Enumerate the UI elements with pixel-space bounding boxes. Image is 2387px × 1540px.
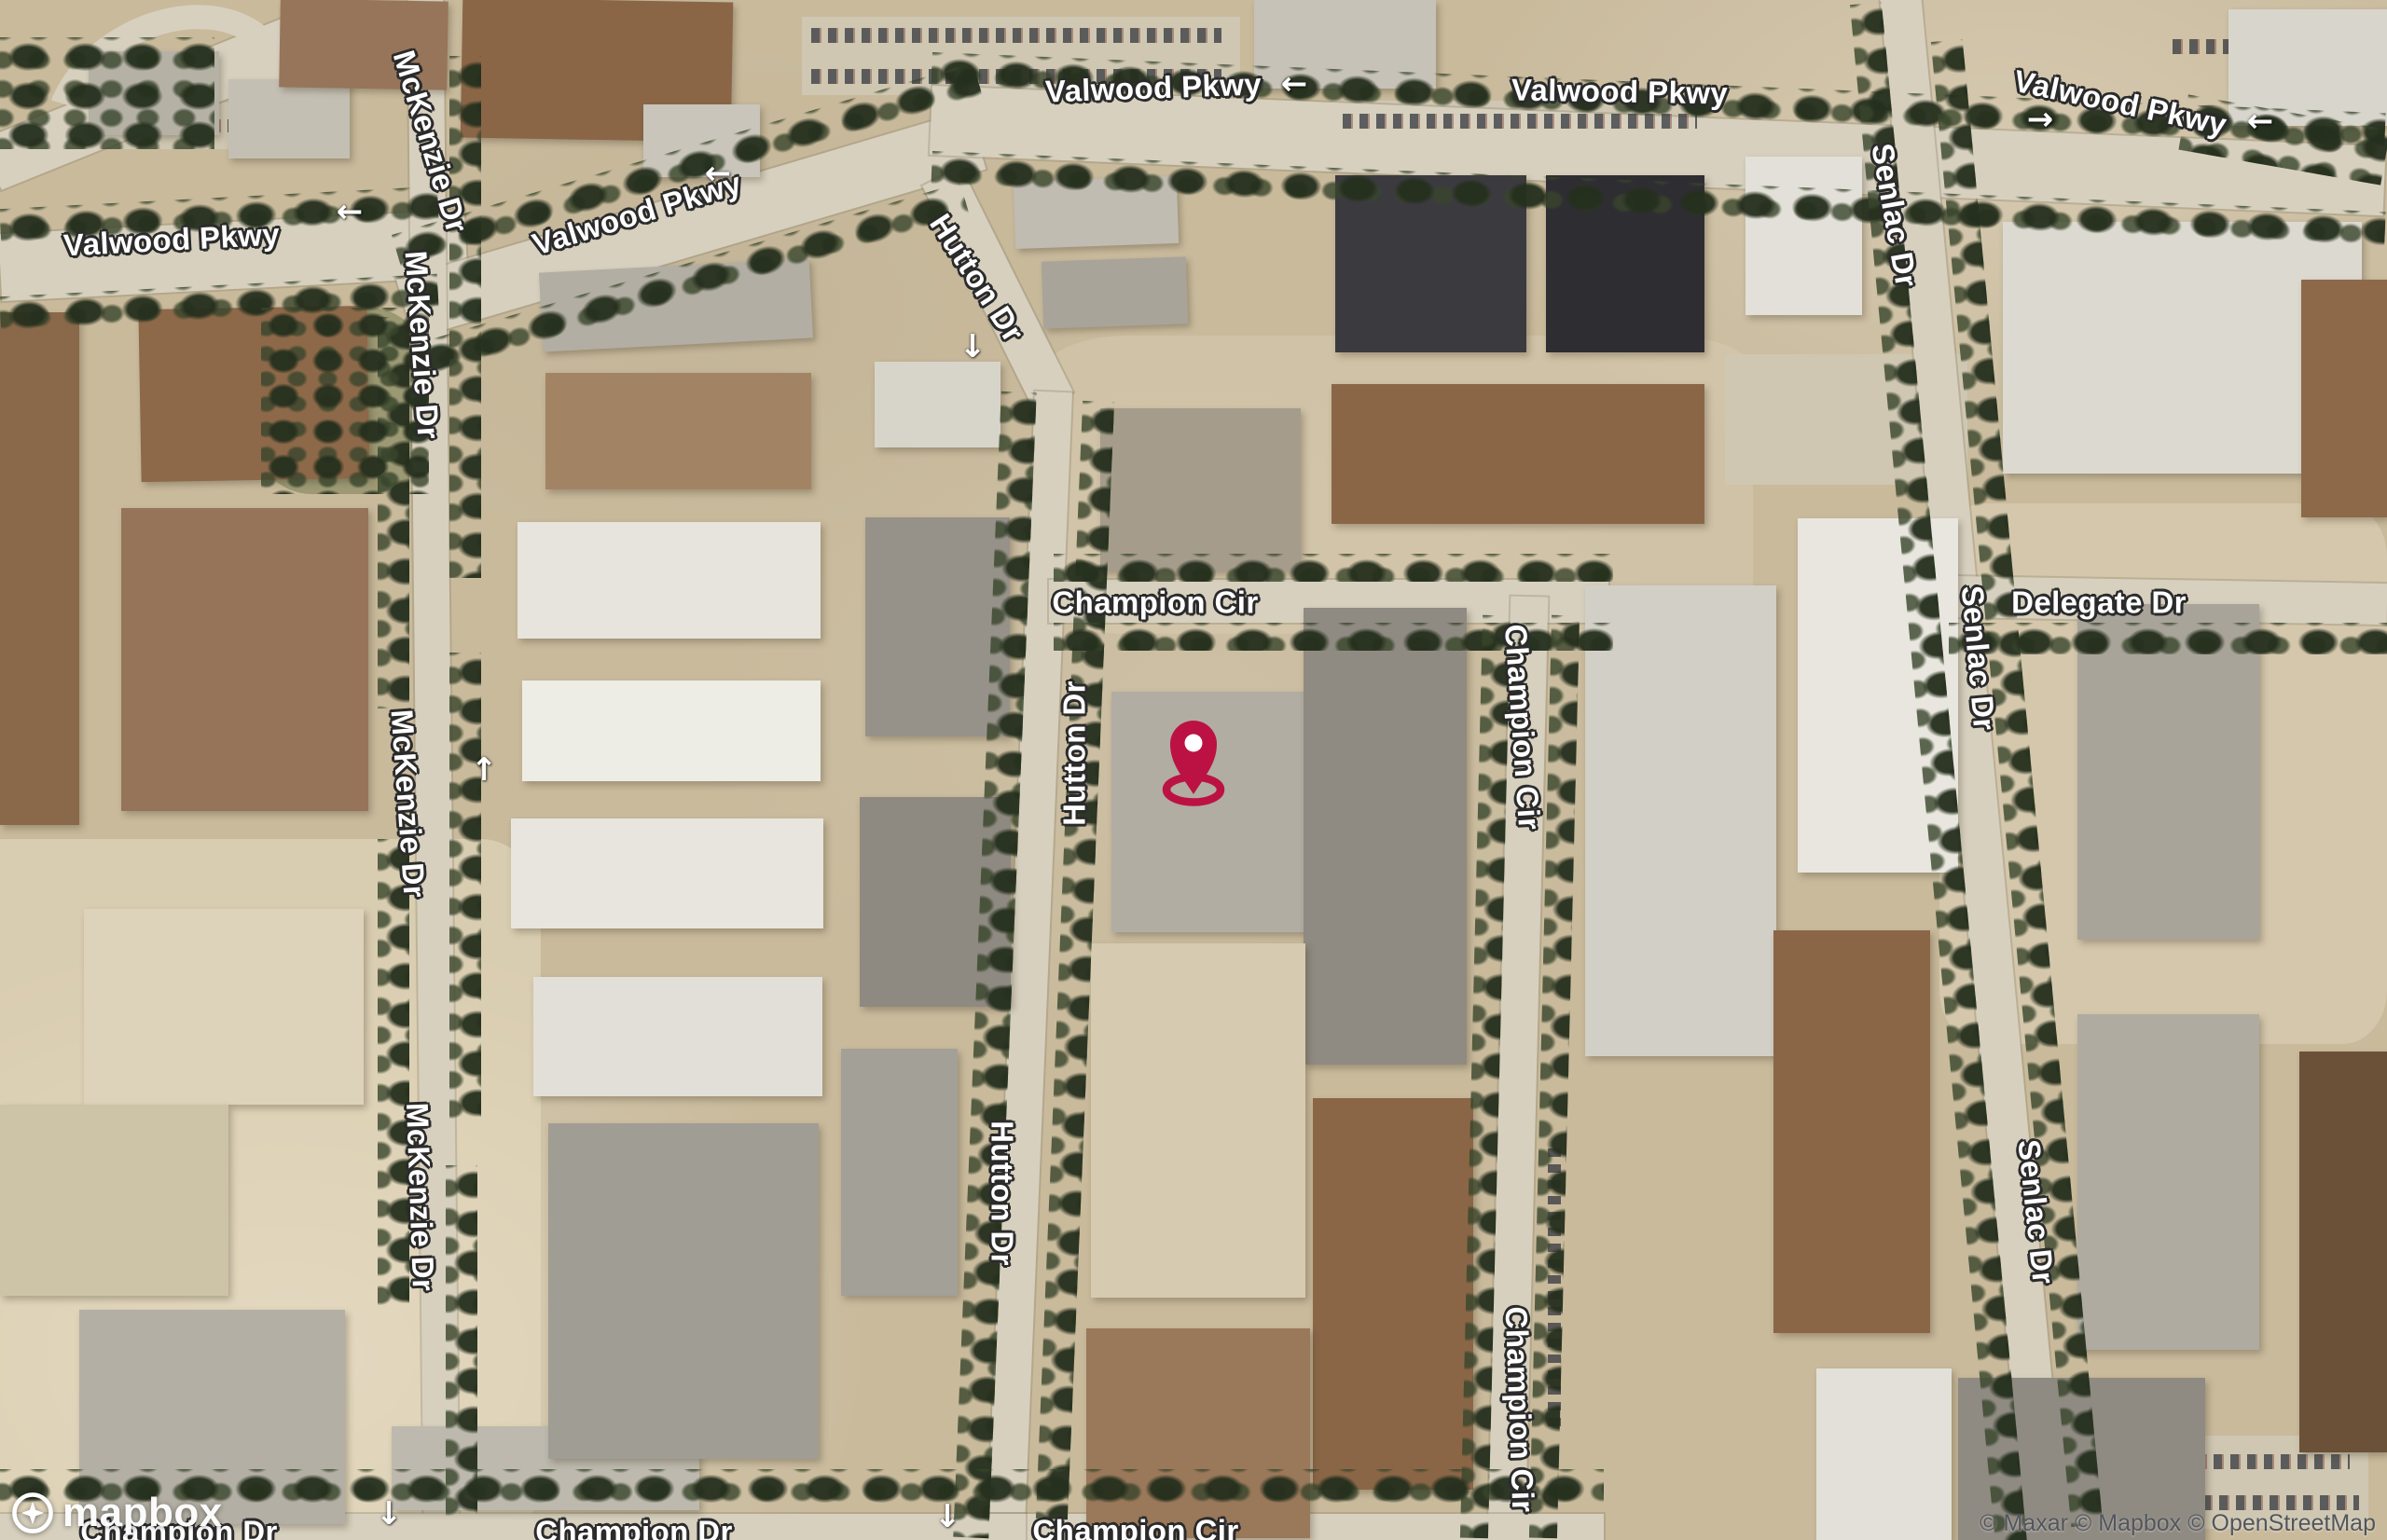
street-label: Hutton Dr	[1059, 681, 1090, 826]
mapbox-logo[interactable]: mapbox	[11, 1492, 223, 1534]
street-label: Valwood Pkwy	[2011, 65, 2229, 141]
location-marker[interactable]	[1138, 705, 1249, 821]
street-label: McKenzie Dr	[386, 708, 430, 899]
street-label: Valwood Pkwy	[1511, 74, 1729, 108]
map-canvas[interactable]: Valwood PkwyValwood PkwyValwood PkwyValw…	[0, 0, 2387, 1540]
street-label: Hutton Dr	[925, 209, 1029, 348]
street-label: Champion Dr	[535, 1517, 733, 1540]
street-label: McKenzie Dr	[389, 47, 474, 236]
street-label: Valwood Pkwy	[529, 167, 745, 259]
street-label: Champion Cir	[1500, 624, 1545, 832]
street-label: Champion Cir	[1032, 1516, 1238, 1540]
pin-icon	[1138, 705, 1249, 817]
street-label: Hutton Dr	[987, 1121, 1018, 1266]
street-label: Senlac Dr	[1957, 584, 2000, 732]
mapbox-wordmark: mapbox	[62, 1492, 223, 1533]
street-label: Champion Cir	[1501, 1306, 1539, 1513]
street-label: Senlac Dr	[1867, 141, 1923, 289]
map-attribution[interactable]: © Maxar © Mapbox © OpenStreetMap	[1980, 1509, 2376, 1537]
street-label: Valwood Pkwy	[1044, 68, 1262, 106]
street-label: Senlac Dr	[2013, 1138, 2059, 1286]
mapbox-logo-icon	[11, 1492, 54, 1534]
street-label: Champion Cir	[1052, 587, 1258, 618]
street-label: McKenzie Dr	[402, 1102, 439, 1291]
street-label: Delegate Dr	[2011, 587, 2187, 618]
street-label: Valwood Pkwy	[62, 218, 281, 260]
street-label: McKenzie Dr	[400, 250, 444, 440]
